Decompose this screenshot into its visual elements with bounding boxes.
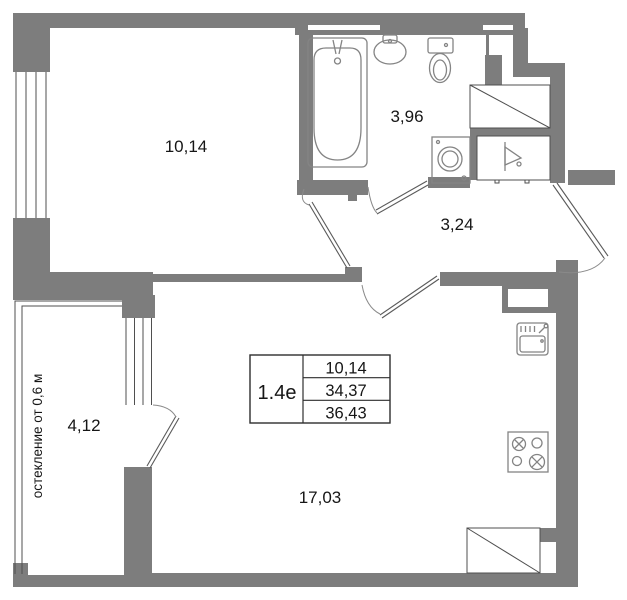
unit-living-area-value: 10,14 [325,360,366,378]
bedroom-door-icon [302,189,350,268]
balcony-door-icon [147,405,179,468]
wall-vent-slit [483,25,513,30]
washbasin-icon [374,35,406,64]
vent-shaft-icon [470,85,550,128]
washing-machine-icon [432,137,470,183]
living-kitchen-area-label: 17,03 [299,488,342,507]
bedroom-window-icon [13,72,50,218]
bedroom-area-label: 10,14 [165,137,208,156]
bathroom-area-label: 3,96 [390,107,423,126]
hall-closet [477,136,550,183]
floor-plan-drawing: 10,14 3,96 3,24 4,12 17,03 остекление от… [0,0,627,600]
bathroom-door-icon [368,181,428,214]
unit-area-value: 34,37 [325,382,366,400]
hallway-area-label: 3,24 [440,215,473,234]
wall-vent-slit [308,25,380,30]
wall-niche [508,289,548,307]
toilet-icon [428,38,453,83]
unit-type-label: 1.4е [258,382,297,404]
balcony-area-label: 4,12 [67,416,100,435]
unit-total-area-value: 36,43 [325,405,366,423]
balcony-glazing-note: остекление от 0,6 м [30,374,45,498]
wardrobe-bottom-right [467,528,540,573]
unit-info-table: 1.4е 10,14 34,37 36,43 [250,355,390,423]
entrance-door-icon [553,183,608,273]
bathtub-icon [308,38,367,167]
kitchen-sink-icon [517,323,548,355]
living-room-door-icon [362,276,439,318]
floor-plan: 10,14 3,96 3,24 4,12 17,03 остекление от… [0,0,627,600]
stove-icon [508,432,548,472]
balcony-window-icon [126,318,152,405]
